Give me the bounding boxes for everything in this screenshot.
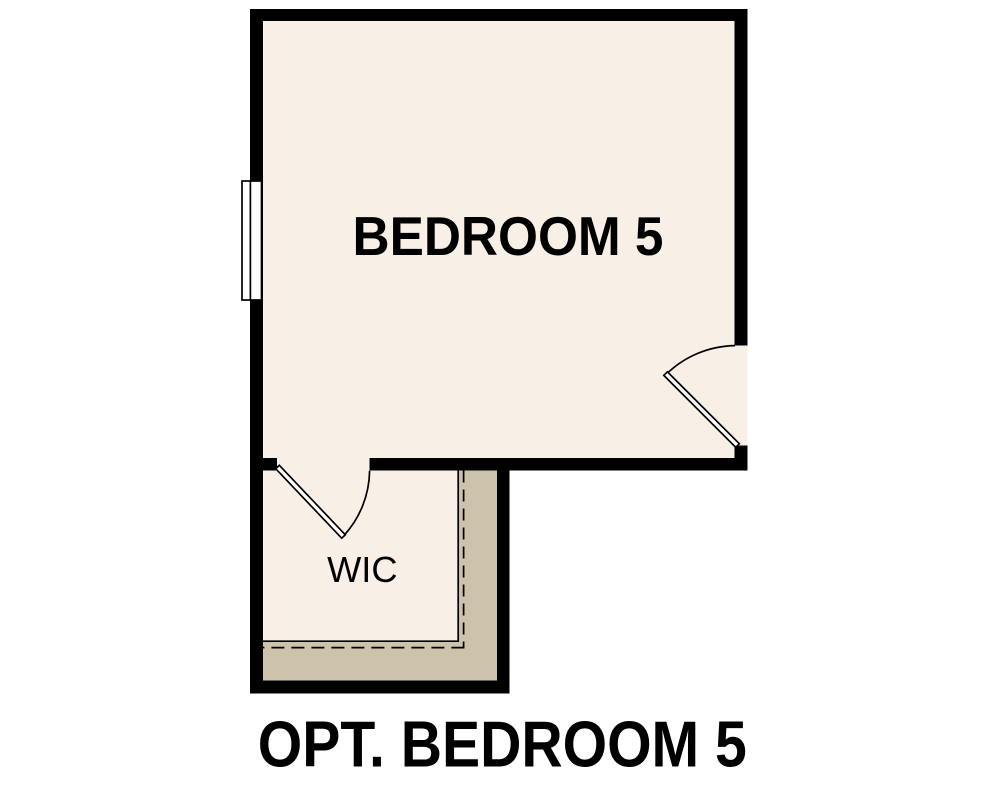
svg-text:OPT. BEDROOM 5: OPT. BEDROOM 5 — [258, 709, 747, 781]
svg-text:BEDROOM 5: BEDROOM 5 — [353, 205, 664, 267]
svg-text:WIC: WIC — [327, 549, 397, 590]
